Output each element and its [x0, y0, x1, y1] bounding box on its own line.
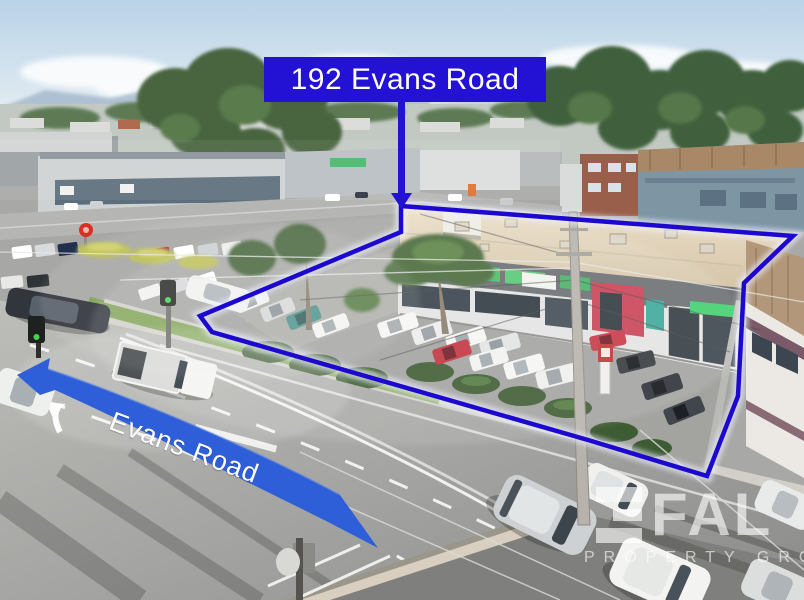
property-boundary-outline	[200, 206, 793, 476]
address-label-text: 192 Evans Road	[291, 63, 520, 97]
label-pointer	[391, 100, 412, 209]
watermark-brand: FAL	[651, 487, 773, 542]
fal-logo-icon	[596, 487, 642, 543]
aerial-property-photo: 192 Evans Road Evans Road FAL PROPERTY G…	[0, 0, 804, 600]
address-label: 192 Evans Road	[264, 57, 546, 102]
brand-watermark: FAL PROPERTY GROUP	[584, 487, 804, 567]
watermark-tagline: PROPERTY GROUP	[584, 549, 804, 567]
